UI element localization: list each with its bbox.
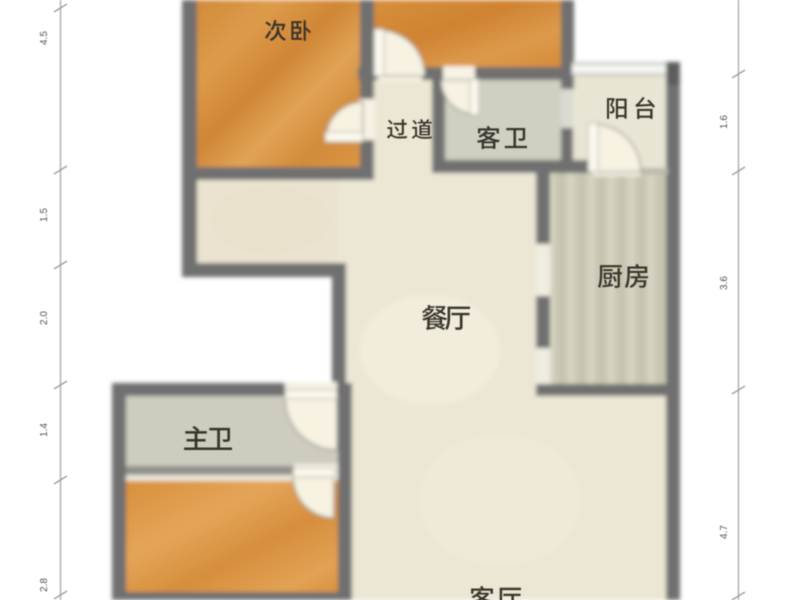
svg-text:2.0: 2.0	[39, 311, 50, 325]
svg-text:4.7: 4.7	[719, 525, 730, 539]
svg-text:2.8: 2.8	[39, 578, 50, 592]
svg-text:1.5: 1.5	[39, 208, 50, 222]
svg-text:1.6: 1.6	[719, 115, 730, 129]
svg-text:1.4: 1.4	[39, 423, 50, 437]
svg-text:4.5: 4.5	[39, 31, 50, 45]
svg-text:3.6: 3.6	[719, 276, 730, 290]
